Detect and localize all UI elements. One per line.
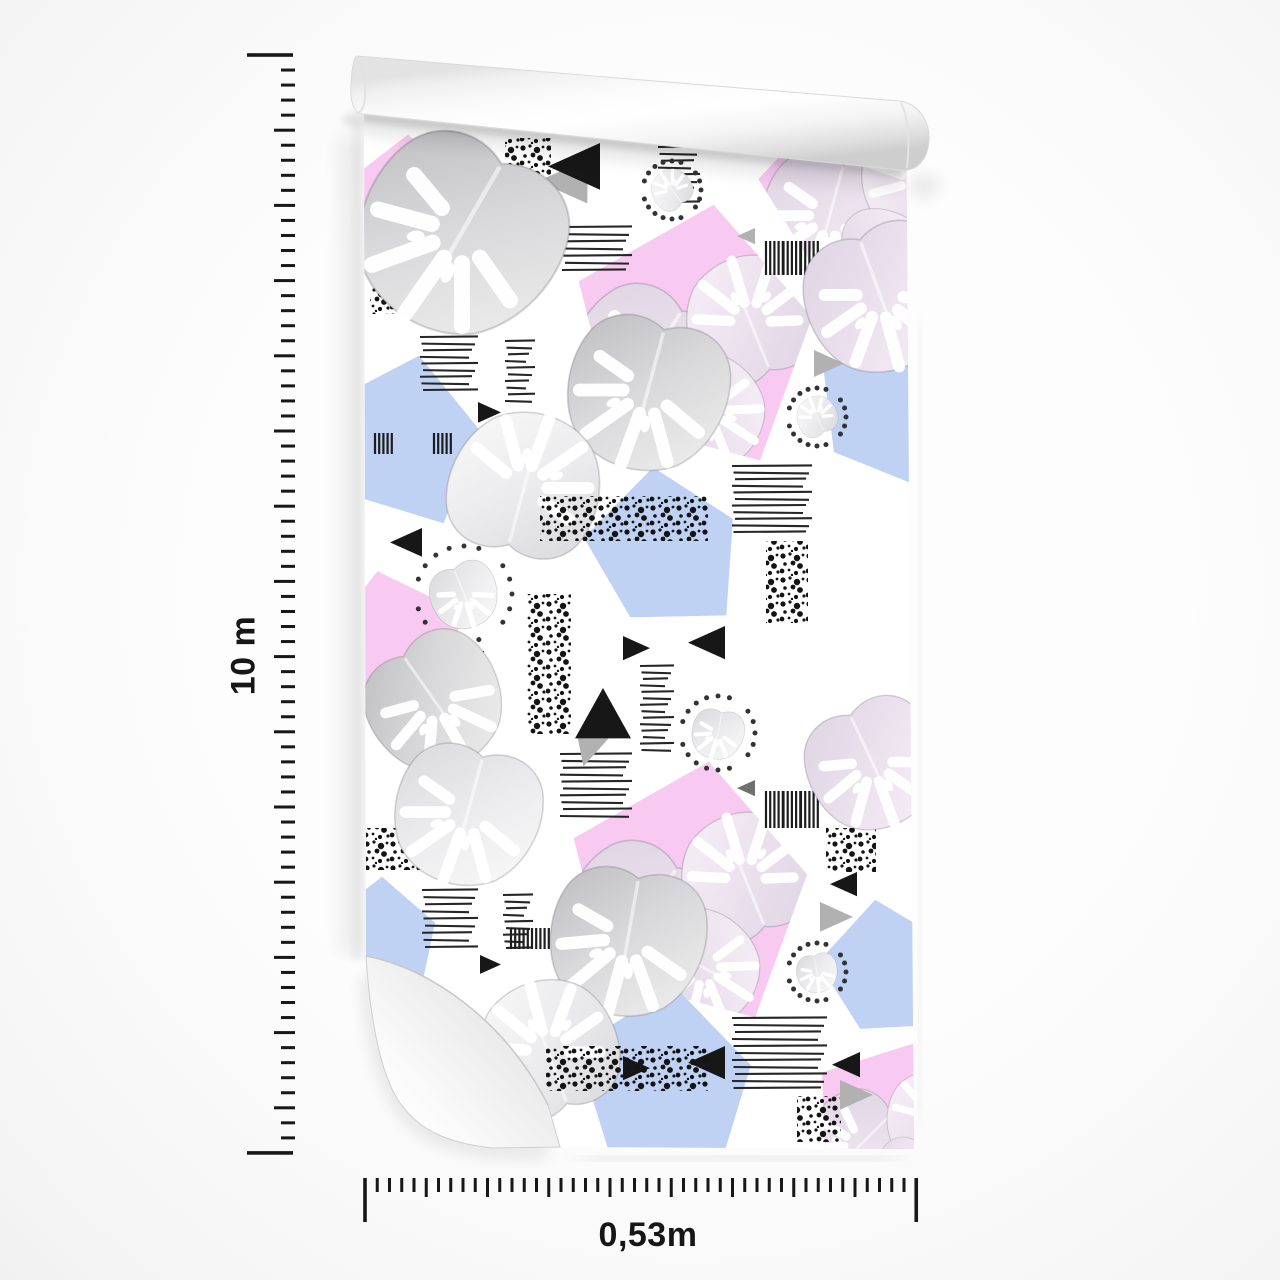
wallpaper-product-mockup: 10 m 0,53m — [0, 0, 1280, 1280]
barcode-block — [766, 791, 818, 828]
speckle-block — [766, 541, 808, 623]
speckle-block — [540, 496, 708, 541]
speckle-block — [797, 1096, 841, 1142]
roll-length-label: 10 m — [225, 614, 264, 698]
product-photo-canvas — [0, 0, 1280, 1280]
vertical-ruler — [247, 53, 295, 1155]
speckle-block — [826, 828, 876, 872]
speckle-block — [546, 1046, 708, 1091]
roll-width-label: 0,53m — [575, 1216, 721, 1255]
speckle-block — [527, 594, 571, 734]
